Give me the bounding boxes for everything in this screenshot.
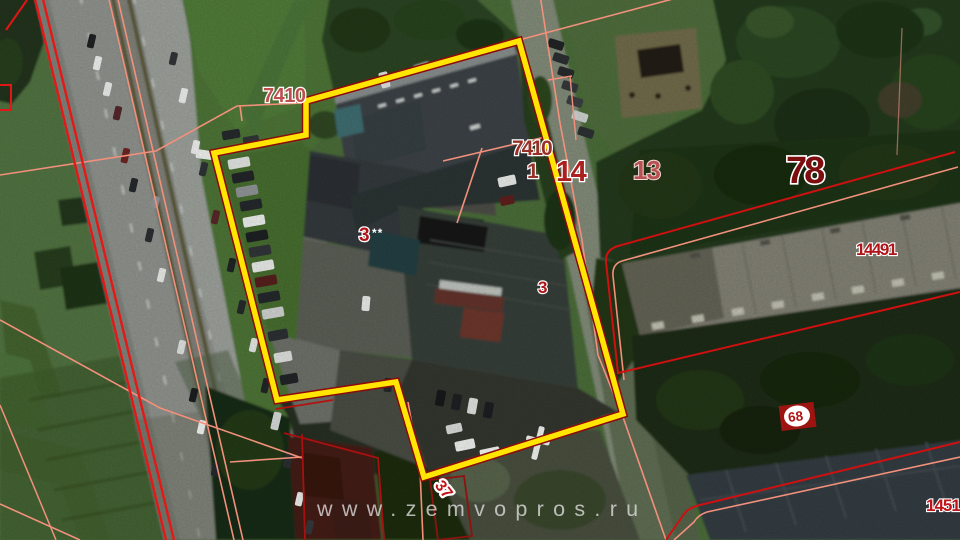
svg-text:68: 68 [787,408,804,425]
svg-text:7410: 7410 [263,85,306,107]
svg-text:14: 14 [556,156,587,188]
svg-text:7410: 7410 [512,137,552,160]
svg-text:3: 3 [359,225,370,246]
svg-text:1451: 1451 [926,496,960,515]
svg-text:www.zemvopros.ru: www.zemvopros.ru [316,497,647,521]
svg-text:**: ** [372,226,383,240]
svg-text:13: 13 [633,155,660,185]
svg-text:1: 1 [527,160,539,183]
svg-text:78: 78 [786,150,824,192]
svg-text:3: 3 [538,278,547,297]
svg-text:14491: 14491 [856,240,897,259]
